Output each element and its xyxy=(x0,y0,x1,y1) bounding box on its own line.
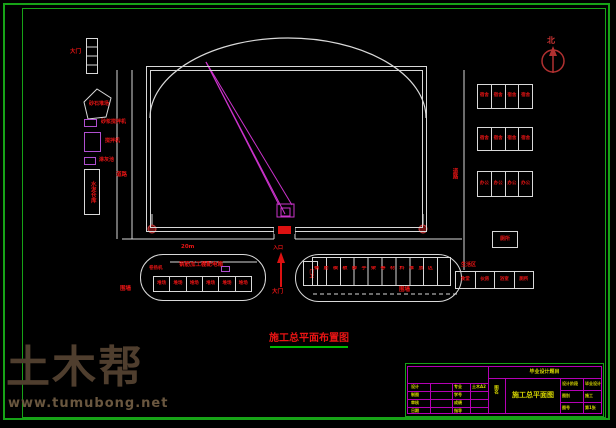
yard-cell: 堆场 xyxy=(170,277,186,291)
tb-drawing-name: 施工总平面图 xyxy=(506,392,560,399)
tb-cell: 指导 xyxy=(454,409,462,413)
tb-cell: 施工 xyxy=(585,394,593,398)
lime-pool-label: 淋灰池 xyxy=(99,158,114,163)
main-building-inner-wall xyxy=(150,70,423,228)
tb-cell: 学号 xyxy=(454,393,462,397)
tb-cell: 成绩 xyxy=(454,401,462,405)
mixer-symbol xyxy=(84,132,101,152)
tb-vline xyxy=(560,378,561,413)
rebar-yard-title: 钢筋加工棚配电箱 xyxy=(179,263,223,269)
winch-label: 卷扬机 xyxy=(149,267,163,272)
dorm-cell: 宿舍 xyxy=(478,85,492,108)
material-table xyxy=(312,257,451,286)
tb-vline xyxy=(430,383,431,413)
office-cell: 办公 xyxy=(492,172,506,196)
power-box-symbol xyxy=(221,266,230,272)
tb-cell: 土木A2 xyxy=(472,385,486,389)
tb-cell: 第1张 xyxy=(585,406,596,410)
road-left-label: 道路 xyxy=(116,173,127,179)
gravel-yard-label: 砂石堆场 xyxy=(89,102,109,107)
office-cell: 办公 xyxy=(506,172,520,196)
watermark-brand: 土木帮 xyxy=(6,346,144,390)
cad-canvas: 北 大门 砂石堆场 砂浆搅拌机 搅拌机 淋灰池 水泥仓库 道路 道路 20m 钢… xyxy=(0,0,616,428)
watermark: 土木帮 www.tumubong.net xyxy=(0,344,230,428)
title-block: 毕业设计题目 设计 专业 土木A2 制图 学号 审核 成绩 日期 指导 图名 施… xyxy=(405,363,604,417)
hoist-pad xyxy=(278,226,291,234)
dorm-group-3: 办公 办公 办公 办公 xyxy=(477,171,533,197)
yard-cell: 堆场 xyxy=(154,277,170,291)
title-block-grid: 毕业设计题目 设计 专业 土木A2 制图 学号 审核 成绩 日期 指导 图名 施… xyxy=(407,366,602,414)
yard-cells-row: 堆场 堆场 堆场 堆场 堆场 堆场 xyxy=(153,276,252,292)
fence-right-label: 围墙 xyxy=(399,288,410,294)
office-cell: 办公 xyxy=(478,172,492,196)
mixer-label: 搅拌机 xyxy=(105,139,120,144)
dorm-cell: 宿舍 xyxy=(519,85,532,108)
tb-hline xyxy=(408,399,488,400)
office-cell: 办公 xyxy=(519,172,532,196)
north-label: 北 xyxy=(547,37,555,45)
tb-header: 毕业设计题目 xyxy=(488,370,601,375)
cement-store-box: 水泥仓库 xyxy=(84,169,100,215)
dorm-cell: 宿舍 xyxy=(519,128,532,150)
yard-cell: 堆场 xyxy=(187,277,203,291)
yard-cell: 堆场 xyxy=(236,277,251,291)
tb-hline xyxy=(560,402,601,403)
tb-vline xyxy=(452,383,453,413)
gate-top-label: 大门 xyxy=(70,50,81,56)
living-area-label: 生活区 xyxy=(461,263,476,268)
gate-top-symbol xyxy=(86,38,98,74)
road-right-label: 道路 xyxy=(451,168,457,179)
tb-vline xyxy=(583,378,584,413)
tb-vline xyxy=(470,383,471,413)
entrance-arrow-head xyxy=(277,252,285,263)
mortar-mixer-label: 砂浆搅拌机 xyxy=(101,120,126,125)
rebar-yard-dim: 20m xyxy=(181,245,194,251)
drawing-title: 施工总平面布置图 xyxy=(269,334,349,344)
gate-main-label: 大门 xyxy=(272,290,283,296)
tb-cell: 设计阶段 xyxy=(562,382,578,386)
dorm-group-1: 宿舍 宿舍 宿舍 宿舍 xyxy=(477,84,533,109)
canteen-row: 食堂 伙房 浴室 厕所 xyxy=(455,271,534,289)
tb-cell: 设计 xyxy=(411,385,419,389)
cement-store-label: 水泥仓库 xyxy=(89,181,95,203)
tb-hline xyxy=(560,390,601,391)
tb-cell: 图号 xyxy=(562,406,570,410)
canteen-cell: 伙房 xyxy=(476,272,496,288)
yard-cell: 堆场 xyxy=(219,277,235,291)
tb-hline xyxy=(408,391,488,392)
tb-cell: 日期 xyxy=(411,409,419,413)
dorm-cell: 宿舍 xyxy=(492,128,506,150)
drawing-title-underline xyxy=(270,346,348,348)
toilet-box: 厕所 xyxy=(492,231,518,248)
dorm-cell: 宿舍 xyxy=(506,128,520,150)
fence-left-label: 围墙 xyxy=(120,287,131,293)
material-area-label: 钢筋模板脚手架等材料堆放区 xyxy=(314,266,450,271)
watermark-url: www.tumubong.net xyxy=(8,396,168,411)
dorm-cell: 宿舍 xyxy=(478,128,492,150)
yard-cell: 堆场 xyxy=(203,277,219,291)
dorm-group-2: 宿舍 宿舍 宿舍 宿舍 xyxy=(477,127,533,151)
mortar-mixer-symbol xyxy=(84,119,97,127)
lime-pool-symbol xyxy=(84,157,96,165)
canteen-cell: 食堂 xyxy=(456,272,476,288)
dorm-cell: 宿舍 xyxy=(492,85,506,108)
dorm-cell: 宿舍 xyxy=(506,85,520,108)
tb-cell: 审核 xyxy=(411,401,419,405)
tb-hline xyxy=(408,407,488,408)
canteen-cell: 浴室 xyxy=(495,272,515,288)
tb-cell: 制图 xyxy=(411,393,419,397)
tb-name-label: 图名 xyxy=(493,385,498,394)
toilet-label: 厕所 xyxy=(500,237,510,242)
entry-label: 入口 xyxy=(273,246,283,251)
tb-cell: 图别 xyxy=(562,394,570,398)
tb-cell: 专业 xyxy=(454,385,462,389)
canteen-cell: 厕所 xyxy=(515,272,534,288)
tb-cell: 毕业设计 xyxy=(585,382,601,386)
